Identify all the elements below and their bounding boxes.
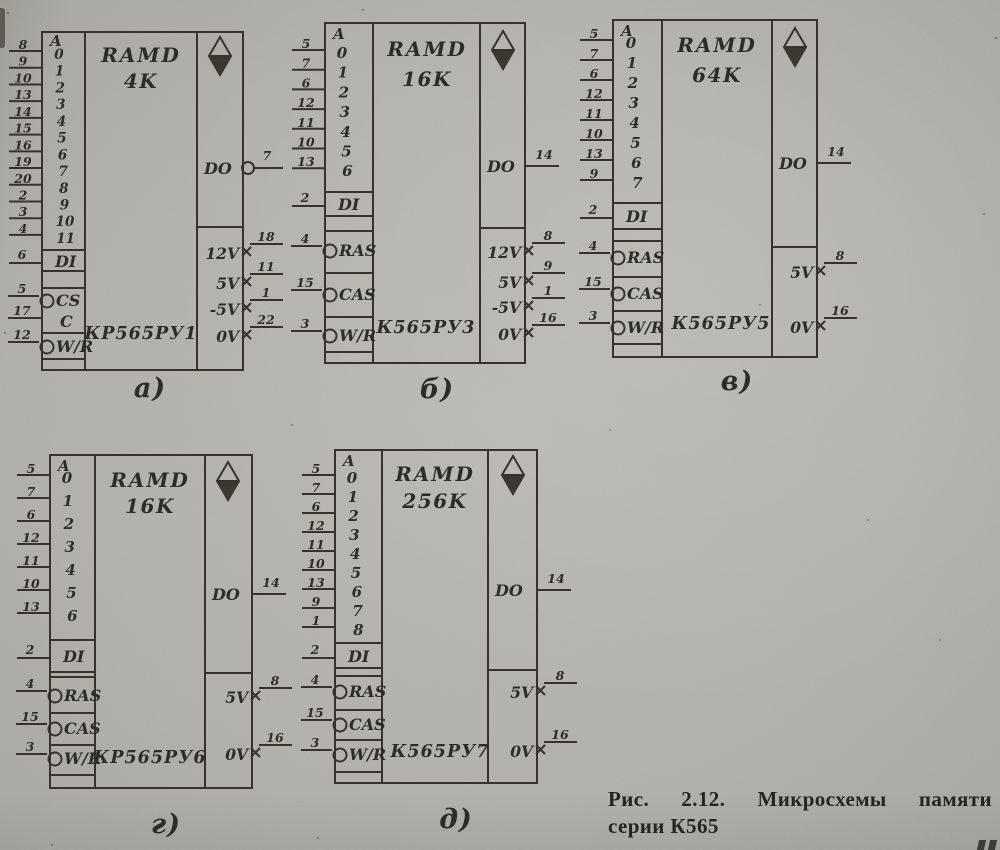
- chip-a-do-label: DO: [203, 159, 232, 178]
- chip-g-address-pin-number-2: 6: [27, 507, 36, 522]
- chip-d-ctrl-label-1: CAS: [349, 715, 386, 734]
- chip-g-address-pin-number-5: 10: [22, 576, 40, 591]
- chip-a-address-bit-8: 8: [59, 181, 69, 197]
- chip-d-address-bit-8: 8: [353, 621, 364, 639]
- chip-b-ctrl-label-2: W/R: [339, 326, 376, 345]
- chip-g-address-pin-number-3: 12: [22, 530, 40, 545]
- chip-g-ctrl-label-0: RAS: [63, 686, 101, 705]
- chip-b-power-pin-number-0: 8: [544, 228, 553, 243]
- chip-g-address-bit-0: 0: [62, 469, 73, 487]
- chip-d-address-bit-4: 4: [350, 545, 360, 563]
- chip-b-address-bit-4: 4: [340, 123, 350, 141]
- chip-v-power-label-0: 5V: [790, 263, 815, 282]
- chip-g-part-number: КР565РУ6: [92, 748, 206, 768]
- chip-d-ctrl-pin-number-1: 15: [306, 705, 323, 720]
- chip-b-address-header: A: [331, 25, 345, 43]
- chip-d-address-pin-number-7: 9: [312, 594, 321, 609]
- chip-b-address-pin-number-6: 13: [297, 154, 315, 169]
- chip-a-address-pin-number-7: 19: [14, 154, 32, 169]
- chip-d-address-pin-number-0: 5: [312, 461, 321, 476]
- chip-b-address-bit-3: 3: [339, 103, 349, 121]
- chip-a-address-pin-number-1: 9: [19, 54, 28, 69]
- chip-g-subfigure-label: г): [151, 809, 181, 840]
- chip-a-address-pin-number-5: 15: [14, 121, 31, 136]
- chip-b-ctrl-pin-number-2: 3: [301, 316, 310, 331]
- chip-d-address-bit-0: 0: [347, 469, 358, 487]
- chip-v-di-label: DI: [625, 207, 648, 226]
- chip-d-di-label: DI: [347, 647, 370, 666]
- chip-d-address-bit-7: 7: [352, 602, 363, 620]
- chip-g-address-bit-6: 6: [67, 607, 78, 625]
- paper-speck: [995, 37, 998, 40]
- chip-v-address-pin-number-5: 10: [585, 126, 603, 141]
- figure-caption-line1: Рис. 2.12. Микросхемы памяти: [608, 786, 992, 813]
- chip-a-do-pin-number: 7: [263, 148, 272, 163]
- chip-b-address-pin-number-5: 10: [297, 135, 315, 150]
- chip-v-do-pin-number: 14: [827, 144, 844, 159]
- chip-g-address-bit-2: 2: [63, 515, 74, 533]
- chip-b-address-pin-number-1: 7: [302, 56, 311, 71]
- chip-b-ctrl-pin-number-1: 15: [296, 275, 313, 290]
- chip-a-power-label-3: 0V: [216, 327, 241, 346]
- chip-b-address-bit-2: 2: [338, 83, 349, 101]
- chip-a-address-pin-number-9: 2: [18, 187, 28, 202]
- chip-v-part-number: К565РУ5: [671, 314, 771, 334]
- chip-v-address-bit-4: 4: [629, 114, 639, 132]
- chip-b-address-bit-0: 0: [337, 44, 348, 62]
- chip-b-address-pin-number-0: 5: [302, 36, 311, 51]
- chip-d-address-pin-number-6: 13: [307, 575, 325, 590]
- chip-d-do-pin-number: 14: [547, 571, 564, 586]
- chip-a-ctrl-pin-number-0: 5: [18, 281, 27, 296]
- chip-d-di-pin-number: 2: [310, 642, 320, 657]
- chip-g-address-pin-number-6: 13: [22, 599, 40, 614]
- chip-b-address-pin-number-4: 11: [297, 115, 314, 130]
- chip-b-address-bit-5: 5: [341, 143, 351, 161]
- page-number-edge-mark: [977, 840, 999, 850]
- chip-g-address-pin-number-0: 5: [27, 461, 36, 476]
- chip-v-capacity: 64K: [692, 63, 742, 87]
- chip-v-ctrl-label-0: RAS: [626, 248, 664, 267]
- paper-speck: [51, 844, 53, 846]
- chip-v-ctrl-pin-number-1: 15: [584, 274, 601, 289]
- chip-a-ctrl-label-1: C: [60, 312, 73, 331]
- chip-b-power-pin-number-2: 1: [544, 283, 553, 298]
- chip-d-address-pin-number-1: 7: [312, 480, 321, 495]
- scanned-book-page: A081921031341451561671982092103114DI65CS…: [0, 0, 1000, 850]
- chip-v-address-pin-number-7: 9: [590, 166, 599, 181]
- chip-g-di-pin-number: 2: [25, 642, 35, 657]
- chip-d-address-bit-6: 6: [352, 583, 363, 601]
- chip-a-capacity: 4K: [124, 69, 158, 93]
- chip-b-di-pin-number: 2: [300, 190, 310, 205]
- chip-g-capacity: 16K: [125, 494, 175, 518]
- chip-d-power-label-0: 5V: [510, 683, 535, 702]
- chip-g-address-pin-number-1: 7: [27, 484, 36, 499]
- chip-a-address-bit-7: 7: [58, 164, 68, 180]
- chip-g-address-bit-1: 1: [63, 492, 73, 510]
- chip-b-power-pin-number-3: 16: [539, 310, 557, 325]
- chip-d-address-pin-number-3: 12: [307, 518, 325, 533]
- chip-b-address-bit-1: 1: [338, 64, 348, 82]
- chip-a-address-pin-number-0: 8: [19, 37, 28, 52]
- chip-d-address-header: A: [341, 452, 355, 470]
- chip-b-power-label-3: 0V: [498, 325, 523, 344]
- chip-v-address-pin-number-2: 6: [590, 66, 599, 81]
- chip-a-address-bit-10: 10: [56, 214, 75, 230]
- chip-v-ctrl-pin-number-2: 3: [589, 308, 598, 323]
- figure-2-12-schematic: A081921031341451561671982092103114DI65CS…: [0, 0, 1000, 850]
- chip-v-address-pin-number-3: 12: [585, 86, 603, 101]
- chip-d-address-pin-number-8: 1: [312, 613, 321, 628]
- chip-v-address-bit-5: 5: [630, 134, 640, 152]
- chip-a-address-bit-4: 4: [57, 114, 66, 130]
- chip-a-address-bit-6: 6: [58, 147, 68, 163]
- chip-d-address-bit-2: 2: [347, 507, 358, 525]
- chip-b-ctrl-label-1: CAS: [339, 285, 376, 304]
- chip-g-address-bit-4: 4: [65, 561, 75, 579]
- chip-b-ctrl-label-0: RAS: [338, 241, 376, 260]
- chip-a-di-pin-number: 6: [18, 247, 27, 262]
- chip-a-address-bit-5: 5: [57, 131, 66, 147]
- chip-g-power-label-0: 5V: [225, 688, 250, 707]
- chip-b-power-pin-number-1: 9: [544, 258, 553, 273]
- chip-g-power-pin-number-1: 16: [266, 730, 284, 745]
- chip-b-subfigure-label: б): [420, 374, 454, 405]
- paper-grain-texture: [0, 0, 1000, 850]
- chip-d-address-bit-5: 5: [351, 564, 361, 582]
- chip-a-ctrl-label-0: CS: [56, 291, 80, 310]
- paper-speck: [291, 424, 293, 426]
- chip-g-ctrl-label-1: CAS: [64, 719, 101, 738]
- paper-speck: [317, 837, 319, 839]
- chip-g-address-pin-number-4: 11: [22, 553, 39, 568]
- chip-v-ctrl-pin-number-0: 4: [589, 238, 598, 253]
- chip-a-power-label-1: 5V: [216, 274, 241, 293]
- chip-d-address-pin-number-5: 10: [307, 556, 325, 571]
- chip-g-power-label-1: 0V: [225, 745, 250, 764]
- chip-v-address-pin-number-4: 11: [585, 106, 602, 121]
- paper-speck: [867, 519, 869, 521]
- chip-v-address-bit-6: 6: [631, 154, 642, 172]
- chip-a-address-pin-number-4: 14: [14, 104, 31, 119]
- chip-a-address-bit-9: 9: [60, 197, 70, 213]
- chip-v-subfigure-label: в): [721, 366, 754, 397]
- chip-a-address-pin-number-6: 16: [14, 137, 32, 152]
- paper-speck: [983, 213, 985, 215]
- chip-v-address-bit-7: 7: [632, 174, 643, 192]
- paper-speck: [362, 9, 364, 11]
- chip-d-address-bit-3: 3: [349, 526, 359, 544]
- figure-caption-line2: серии К565: [608, 813, 992, 840]
- chip-d-do-label: DO: [494, 581, 523, 600]
- chip-d-power-pin-number-1: 16: [551, 727, 569, 742]
- chip-g-di-label: DI: [62, 647, 85, 666]
- chip-d-subfigure-label: д): [439, 804, 473, 835]
- chip-b-di-label: DI: [337, 195, 360, 214]
- chip-b-part-number: К565РУ3: [376, 318, 476, 338]
- chip-v-power-pin-number-0: 8: [836, 248, 845, 263]
- chip-a-ctrl-pin-number-2: 12: [13, 327, 31, 342]
- chip-b-address-pin-number-3: 12: [297, 95, 315, 110]
- chip-a-power-pin-number-1: 11: [257, 259, 274, 274]
- chip-a-di-label: DI: [54, 252, 77, 271]
- chip-a-address-pin-number-11: 4: [19, 221, 28, 236]
- chip-g-device-type: RAMD: [109, 468, 190, 492]
- chip-b-ctrl-pin-number-0: 4: [301, 231, 310, 246]
- chip-v-address-bit-3: 3: [628, 94, 638, 112]
- chip-g-do-pin-number: 14: [262, 575, 279, 590]
- chip-a-power-pin-number-2: 1: [262, 285, 271, 300]
- chip-g-ctrl-pin-number-2: 3: [26, 739, 35, 754]
- chip-v-address-bit-0: 0: [626, 34, 637, 52]
- chip-a-power-pin-number-3: 22: [256, 312, 275, 327]
- chip-d-ctrl-pin-number-0: 4: [311, 672, 320, 687]
- chip-b-power-label-1: 5V: [498, 273, 523, 292]
- chip-g-ctrl-pin-number-1: 15: [21, 709, 38, 724]
- chip-d-power-pin-number-0: 8: [556, 668, 565, 683]
- figure-caption: Рис. 2.12. Микросхемы памяти серии К565: [608, 786, 992, 840]
- chip-v-ctrl-label-2: W/R: [627, 318, 664, 337]
- chip-v-di-pin-number: 2: [588, 202, 598, 217]
- chip-b-capacity: 16K: [402, 67, 452, 91]
- chip-a-address-pin-number-10: 3: [19, 204, 28, 219]
- chip-v-ctrl-label-1: CAS: [627, 284, 664, 303]
- chip-a-address-pin-number-2: 10: [14, 70, 32, 85]
- chip-d-part-number: К565РУ7: [390, 742, 490, 762]
- chip-a-power-label-0: 12V: [205, 244, 241, 263]
- chip-d-ctrl-label-2: W/R: [349, 745, 386, 764]
- chip-d-ctrl-pin-number-2: 3: [311, 735, 320, 750]
- chip-a-address-bit-11: 11: [56, 231, 75, 247]
- chip-b-device-type: RAMD: [386, 37, 467, 61]
- paper-speck: [609, 429, 611, 431]
- chip-g-address-bit-3: 3: [64, 538, 74, 556]
- chip-d-ctrl-label-0: RAS: [348, 682, 386, 701]
- chip-g-ctrl-pin-number-0: 4: [26, 676, 35, 691]
- chip-v-do-label: DO: [778, 154, 807, 173]
- chip-a-address-pin-number-8: 20: [13, 171, 32, 186]
- chip-v-address-bit-1: 1: [627, 54, 637, 72]
- paper-speck: [4, 332, 6, 334]
- chip-b-power-label-0: 12V: [487, 243, 523, 262]
- chip-b-do-label: DO: [486, 157, 515, 176]
- chip-d-address-pin-number-4: 11: [307, 537, 324, 552]
- chip-v-address-bit-2: 2: [627, 74, 638, 92]
- chip-d-address-bit-1: 1: [348, 488, 358, 506]
- chip-b-do-pin-number: 14: [535, 147, 552, 162]
- chip-a-power-pin-number-0: 18: [257, 229, 275, 244]
- chip-a-part-number: КР565РУ1: [83, 324, 197, 344]
- chip-v-address-pin-number-1: 7: [590, 46, 599, 61]
- chip-d-power-label-1: 0V: [510, 742, 535, 761]
- chip-a-device-type: RAMD: [100, 43, 181, 67]
- chip-g-power-pin-number-0: 8: [271, 673, 280, 688]
- chip-g-do-label: DO: [211, 585, 240, 604]
- paper-speck: [759, 304, 761, 306]
- paper-speck: [939, 639, 941, 641]
- scan-edge-blot: [0, 8, 5, 48]
- chip-d-capacity: 256K: [401, 489, 467, 513]
- paper-speck: [7, 12, 10, 15]
- chip-v-device-type: RAMD: [676, 33, 757, 57]
- chip-a-address-bit-0: 0: [54, 47, 64, 63]
- chip-a-ctrl-pin-number-1: 17: [13, 303, 31, 318]
- chip-v-address-pin-number-6: 13: [585, 146, 603, 161]
- chip-b-address-pin-number-2: 6: [302, 75, 311, 90]
- chip-b-power-label-2: -5V: [492, 298, 523, 317]
- chip-a-power-label-2: -5V: [210, 300, 241, 319]
- chip-a-address-bit-1: 1: [55, 64, 64, 80]
- chip-v-address-pin-number-0: 5: [590, 26, 599, 41]
- chip-a-address-pin-number-3: 13: [14, 87, 32, 102]
- chip-d-address-pin-number-2: 6: [312, 499, 321, 514]
- chip-a-address-bit-3: 3: [56, 97, 65, 113]
- chip-v-power-pin-number-1: 16: [831, 303, 849, 318]
- chip-a-subfigure-label: а): [134, 373, 166, 404]
- chip-d-device-type: RAMD: [394, 462, 475, 486]
- chip-v-power-label-1: 0V: [790, 318, 815, 337]
- chip-g-address-bit-5: 5: [66, 584, 76, 602]
- chip-a-address-bit-2: 2: [54, 80, 64, 96]
- chip-b-address-bit-6: 6: [342, 162, 353, 180]
